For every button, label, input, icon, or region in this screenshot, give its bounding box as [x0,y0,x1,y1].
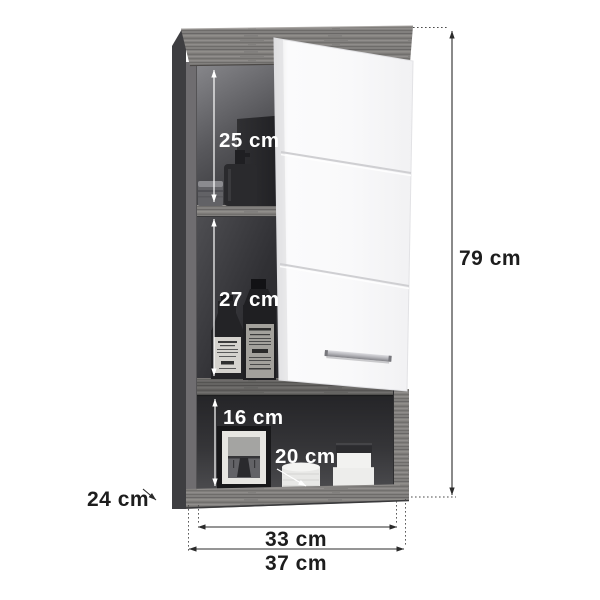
dim-label-middle-compartment: 27 cm [219,288,280,311]
stacked-storage-boxes [333,443,374,490]
cabinet-door [274,38,413,391]
product-dimension-diagram: 25 cm 27 cm 16 cm 20 cm 79 cm 33 cm 37 c… [0,0,600,600]
dim-label-total-height: 79 cm [459,247,521,270]
wall-cabinet-illustration: 25 cm 27 cm 16 cm 20 cm 79 cm 33 cm 37 c… [0,0,600,600]
door-front [274,38,413,391]
picture-frame [217,426,271,489]
cosmetic-jar [198,181,223,206]
dim-label-inner-width: 33 cm [265,528,327,551]
dim-label-niche-height: 16 cm [223,406,284,429]
jetty-photo [228,437,260,478]
left-side-panel [172,29,186,509]
dim-label-top-compartment: 25 cm [219,129,280,152]
left-front-edge [186,62,197,498]
dim-label-total-width: 37 cm [265,552,327,575]
right-side-pillar [393,389,409,487]
dim-label-depth: 24 cm [87,488,149,511]
dim-label-niche-depth: 20 cm [275,445,336,468]
